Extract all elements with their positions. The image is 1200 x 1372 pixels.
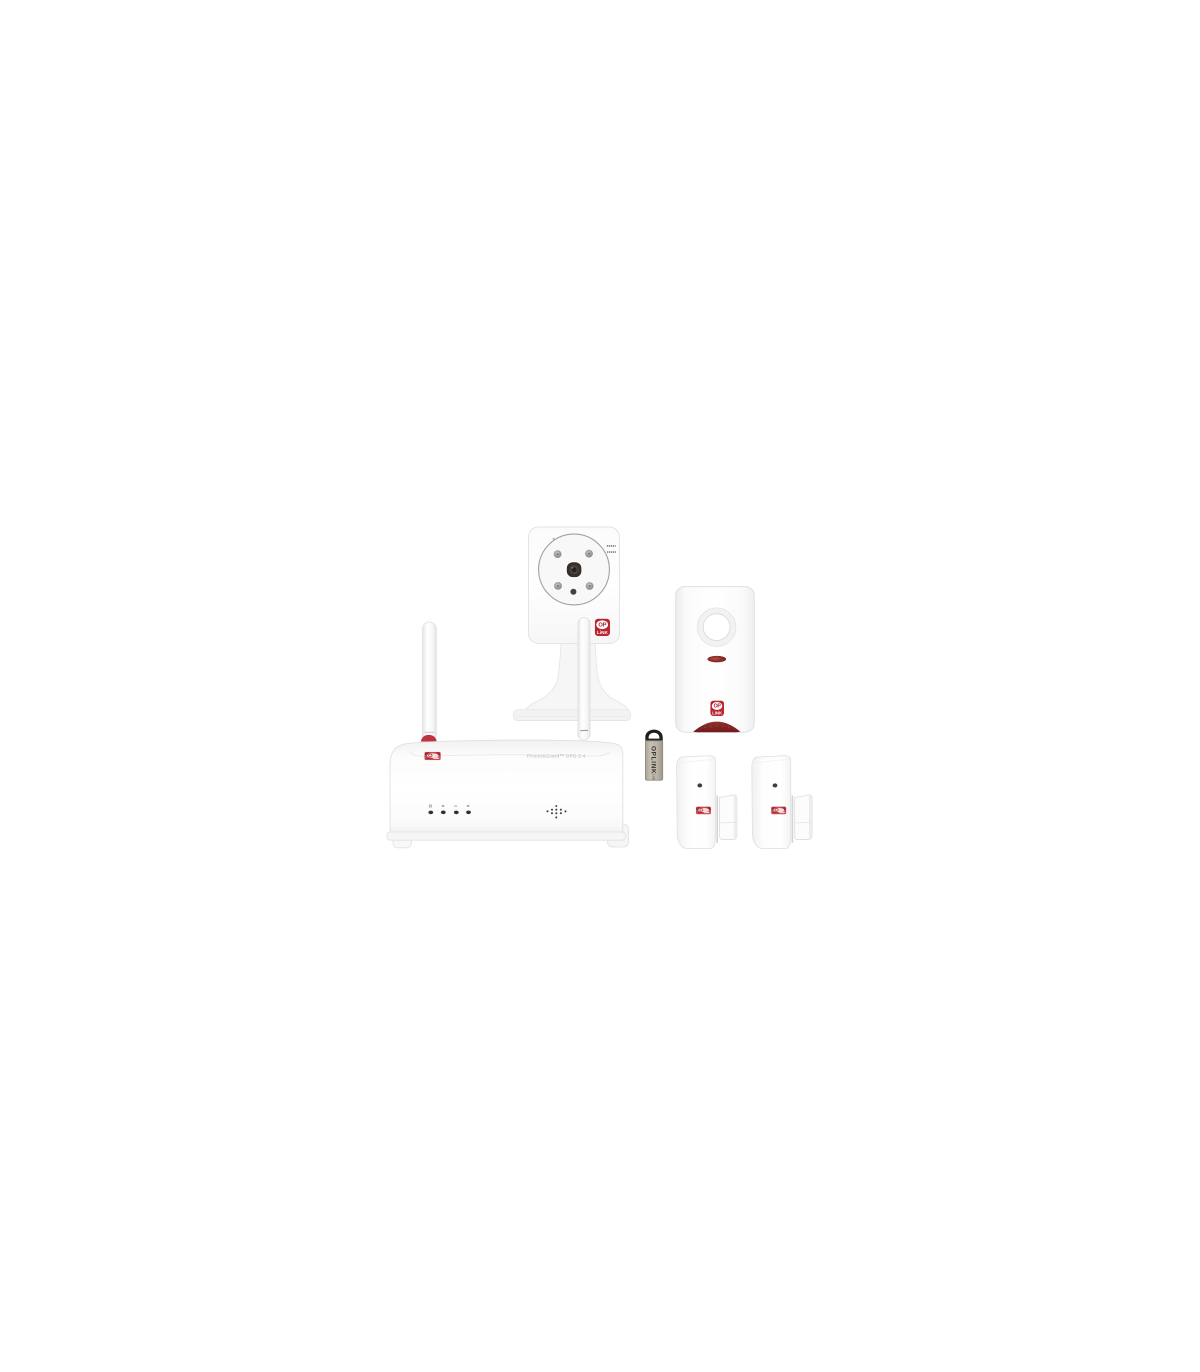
- svg-text:OPLINK: OPLINK: [650, 746, 657, 774]
- svg-text:ProcessGuard™ OPG 2.4: ProcessGuard™ OPG 2.4: [527, 753, 586, 758]
- svg-text:1aB: 1aB: [652, 774, 656, 781]
